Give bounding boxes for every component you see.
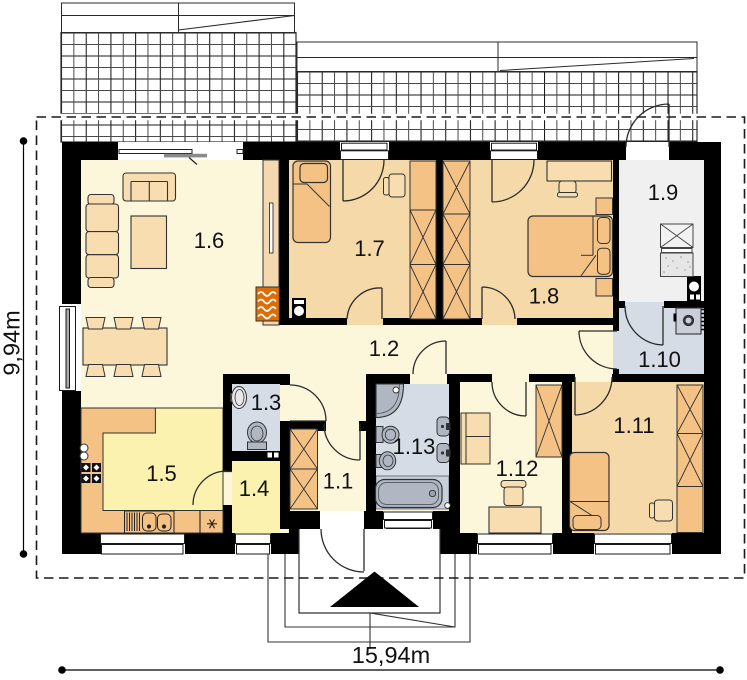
svg-text:1.11: 1.11 <box>613 413 654 438</box>
svg-text:1.6: 1.6 <box>194 228 225 253</box>
svg-text:1.9: 1.9 <box>648 180 679 205</box>
svg-text:15,94m: 15,94m <box>352 642 430 668</box>
svg-text:1.10: 1.10 <box>638 347 681 372</box>
svg-text:1.3: 1.3 <box>251 390 282 415</box>
svg-text:9,94m: 9,94m <box>0 310 25 375</box>
svg-text:1.2: 1.2 <box>369 336 400 361</box>
svg-text:1.8: 1.8 <box>529 284 560 309</box>
svg-text:1.1: 1.1 <box>323 469 354 494</box>
svg-text:1.7: 1.7 <box>354 236 385 261</box>
svg-text:1.5: 1.5 <box>146 461 177 486</box>
svg-text:1.12: 1.12 <box>496 456 539 481</box>
svg-text:1.13: 1.13 <box>393 434 436 459</box>
svg-text:1.4: 1.4 <box>239 476 270 501</box>
